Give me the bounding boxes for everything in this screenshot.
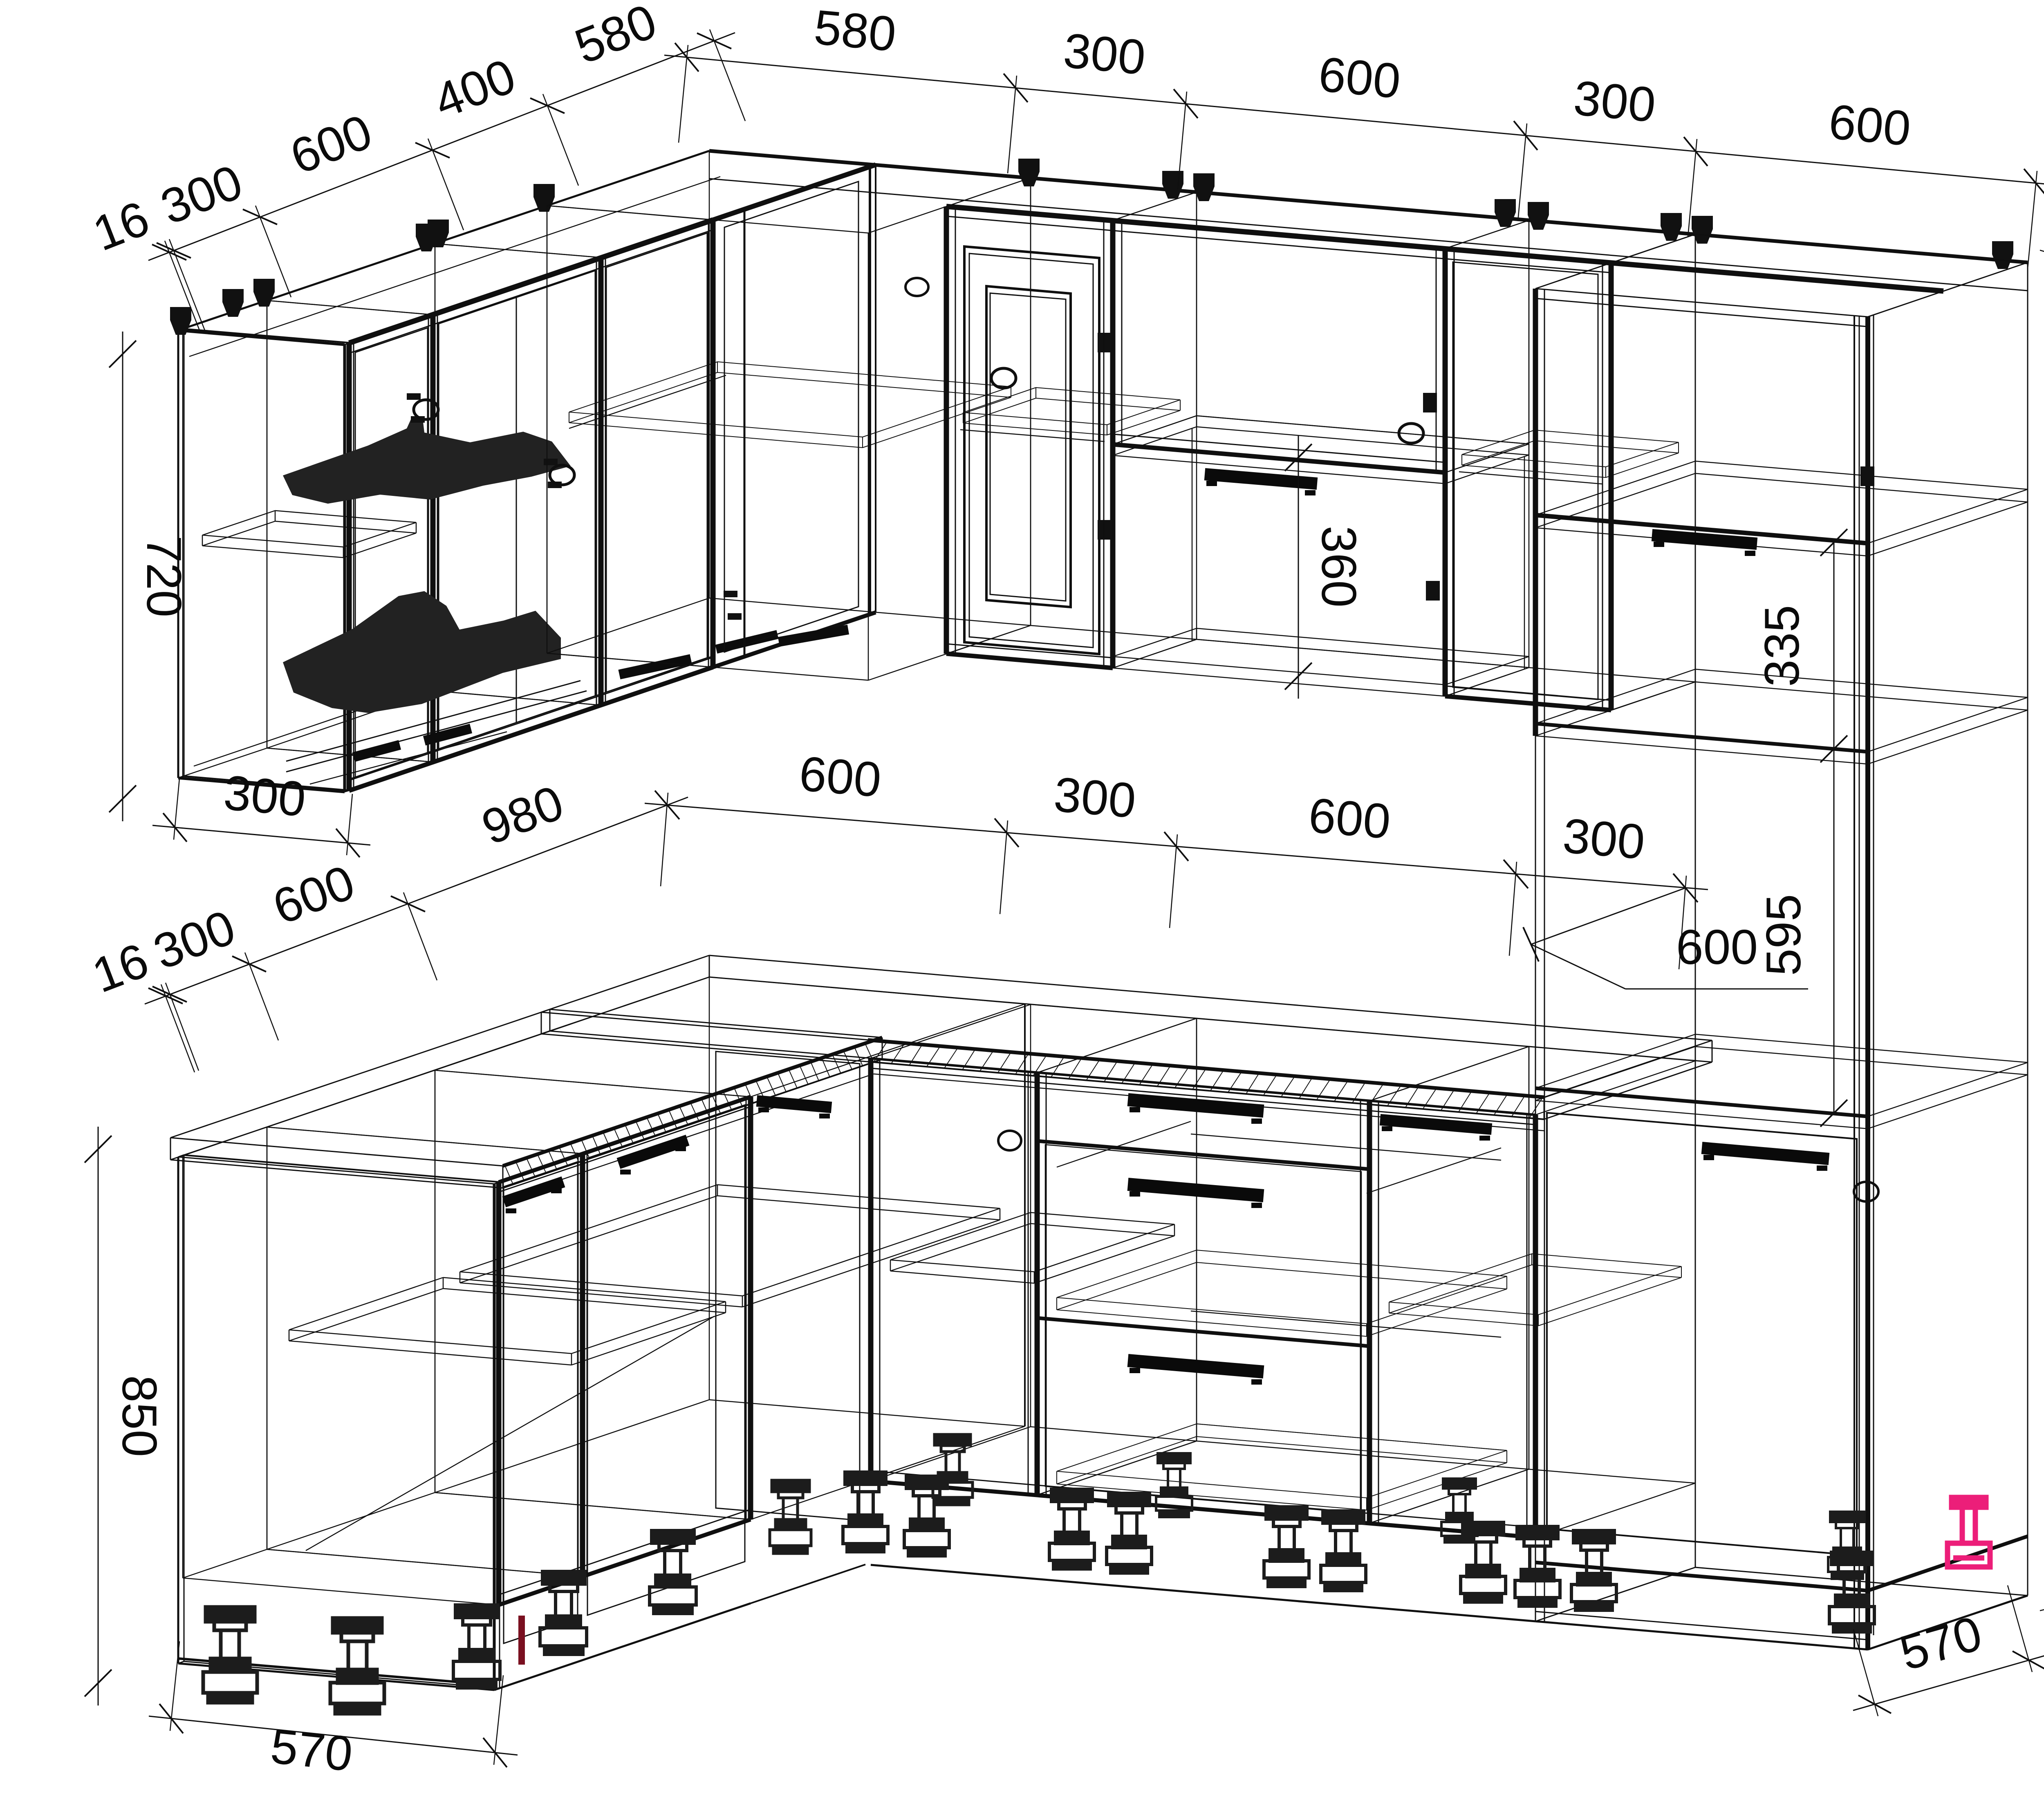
svg-text:600: 600 — [1827, 94, 1913, 156]
svg-text:600: 600 — [797, 746, 883, 807]
svg-text:600: 600 — [1307, 788, 1393, 849]
svg-text:300: 300 — [1061, 23, 1148, 85]
svg-text:850: 850 — [112, 1375, 167, 1457]
svg-text:300: 300 — [222, 765, 308, 827]
svg-text:720: 720 — [137, 536, 191, 617]
svg-text:595: 595 — [1756, 894, 1811, 976]
svg-text:600: 600 — [1676, 920, 1758, 975]
svg-text:580: 580 — [812, 0, 899, 62]
svg-text:570: 570 — [268, 1719, 355, 1782]
svg-text:300: 300 — [1571, 70, 1658, 132]
svg-text:300: 300 — [1052, 767, 1138, 828]
svg-text:300: 300 — [1561, 808, 1647, 870]
svg-text:335: 335 — [1755, 605, 1809, 687]
svg-text:360: 360 — [1311, 526, 1366, 607]
svg-text:600: 600 — [1316, 47, 1403, 109]
